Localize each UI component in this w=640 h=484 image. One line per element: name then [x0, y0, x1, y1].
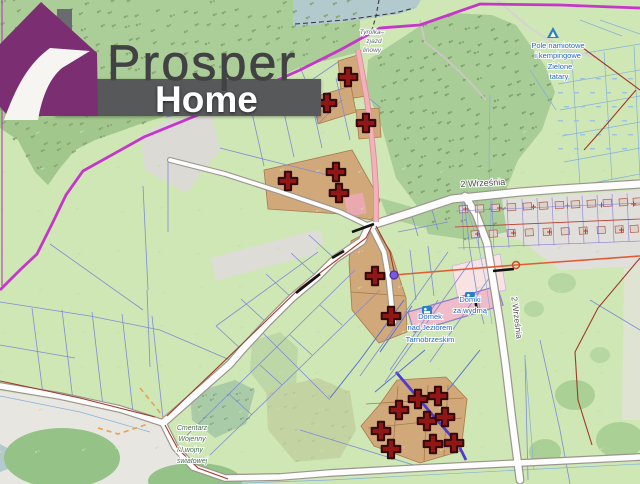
svg-text:linowy: linowy: [363, 47, 382, 54]
svg-text:i kempingowe: i kempingowe: [535, 51, 581, 60]
svg-text:światowej: światowej: [177, 458, 208, 465]
svg-text:Tyrolka–: Tyrolka–: [360, 29, 385, 36]
svg-text:Zielone: Zielone: [548, 62, 573, 71]
svg-text:Wojenny: Wojenny: [178, 436, 206, 443]
svg-text:Pole namiotowe: Pole namiotowe: [531, 41, 584, 50]
svg-text:Domek: Domek: [418, 312, 442, 321]
svg-text:za wydmą: za wydmą: [453, 306, 488, 315]
svg-text:zjazd: zjazd: [365, 38, 382, 45]
svg-text:Tarnobrzeskim: Tarnobrzeskim: [406, 335, 455, 344]
svg-text:Cmentarz: Cmentarz: [177, 425, 208, 432]
svg-text:Domki: Domki: [459, 295, 481, 304]
svg-text:nad Jeziorem: nad Jeziorem: [407, 323, 452, 332]
svg-text:tatary: tatary: [550, 72, 569, 81]
svg-text:/ I wojny: / I wojny: [176, 447, 203, 454]
